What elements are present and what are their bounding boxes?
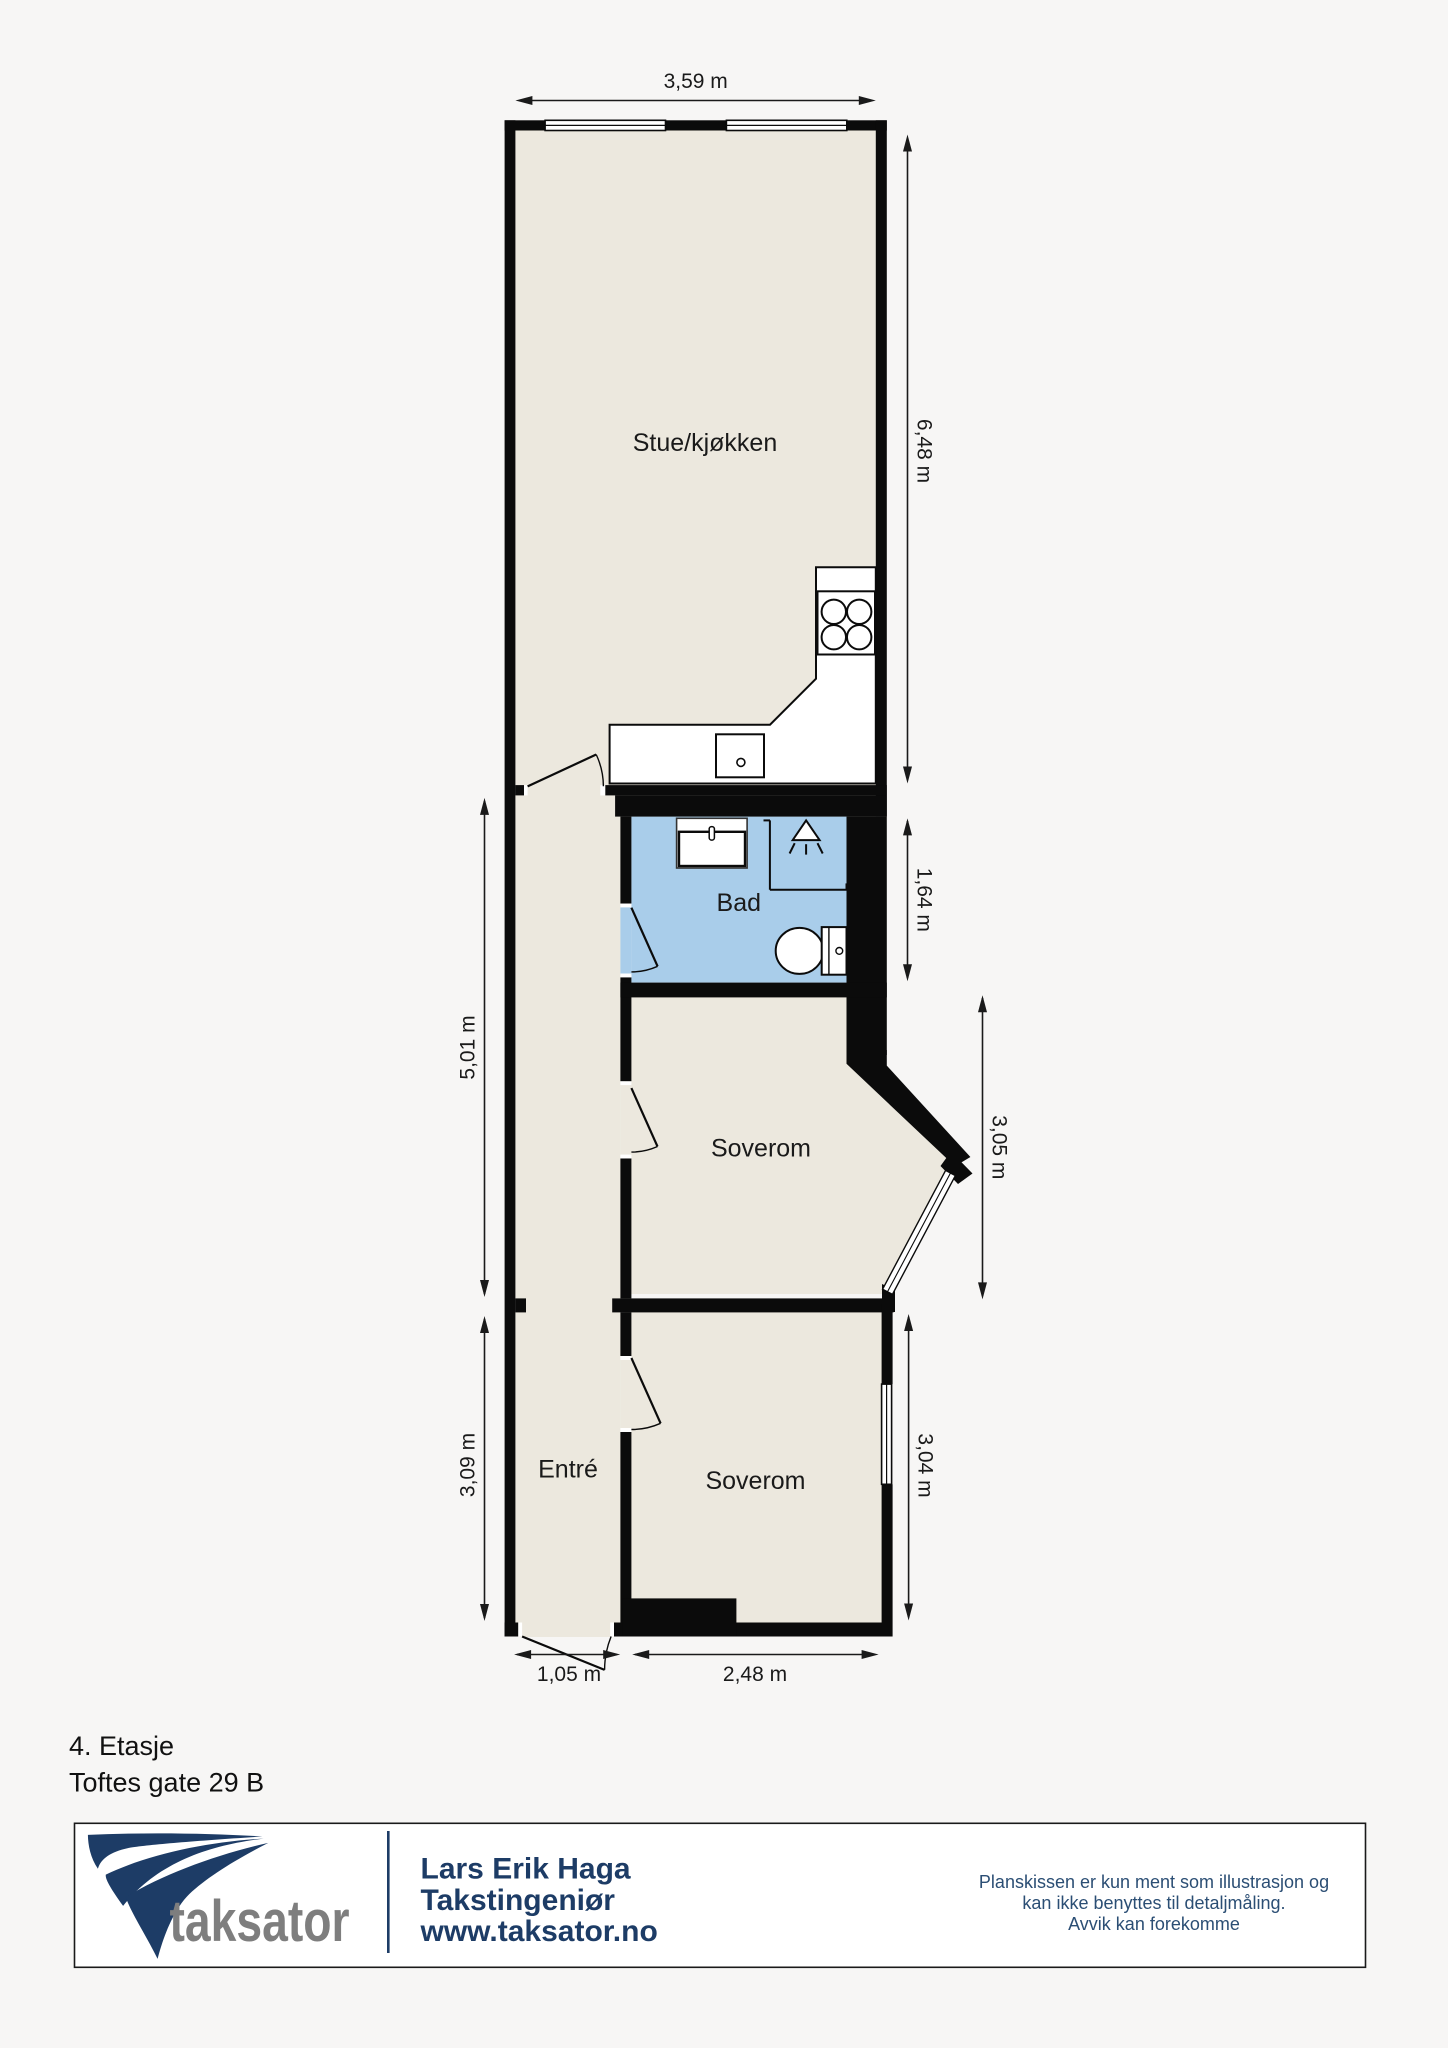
svg-text:1,64 m: 1,64 m [913,868,936,932]
svg-text:taksator: taksator [170,1889,350,1954]
svg-text:6,48 m: 6,48 m [913,419,936,483]
svg-text:Soverom: Soverom [711,1135,811,1163]
svg-text:1,05 m: 1,05 m [537,1663,601,1686]
svg-text:3,05 m: 3,05 m [988,1115,1011,1179]
svg-text:3,09 m: 3,09 m [456,1433,479,1497]
svg-text:Stue/kjøkken: Stue/kjøkken [633,429,778,457]
svg-text:5,01 m: 5,01 m [456,1015,479,1079]
svg-text:Avvik kan forekomme: Avvik kan forekomme [1068,1914,1240,1934]
svg-text:Bad: Bad [717,889,761,917]
svg-text:3,04 m: 3,04 m [914,1433,937,1497]
svg-text:Lars Erik Haga: Lars Erik Haga [421,1853,631,1886]
svg-text:3,59 m: 3,59 m [664,70,728,93]
svg-text:2,48 m: 2,48 m [723,1663,787,1686]
svg-text:Planskissen er kun ment som il: Planskissen er kun ment som illustrasjon… [979,1872,1329,1892]
svg-text:Takstingeniør: Takstingeniør [421,1884,616,1917]
svg-text:Toftes gate 29 B: Toftes gate 29 B [69,1768,264,1798]
svg-text:kan ikke benyttes til detaljmå: kan ikke benyttes til detaljmåling. [1022,1893,1285,1913]
svg-text:www.taksator.no: www.taksator.no [420,1915,658,1948]
svg-text:Entré: Entré [538,1456,598,1484]
svg-text:4. Etasje: 4. Etasje [69,1731,174,1761]
svg-text:Soverom: Soverom [705,1467,805,1495]
